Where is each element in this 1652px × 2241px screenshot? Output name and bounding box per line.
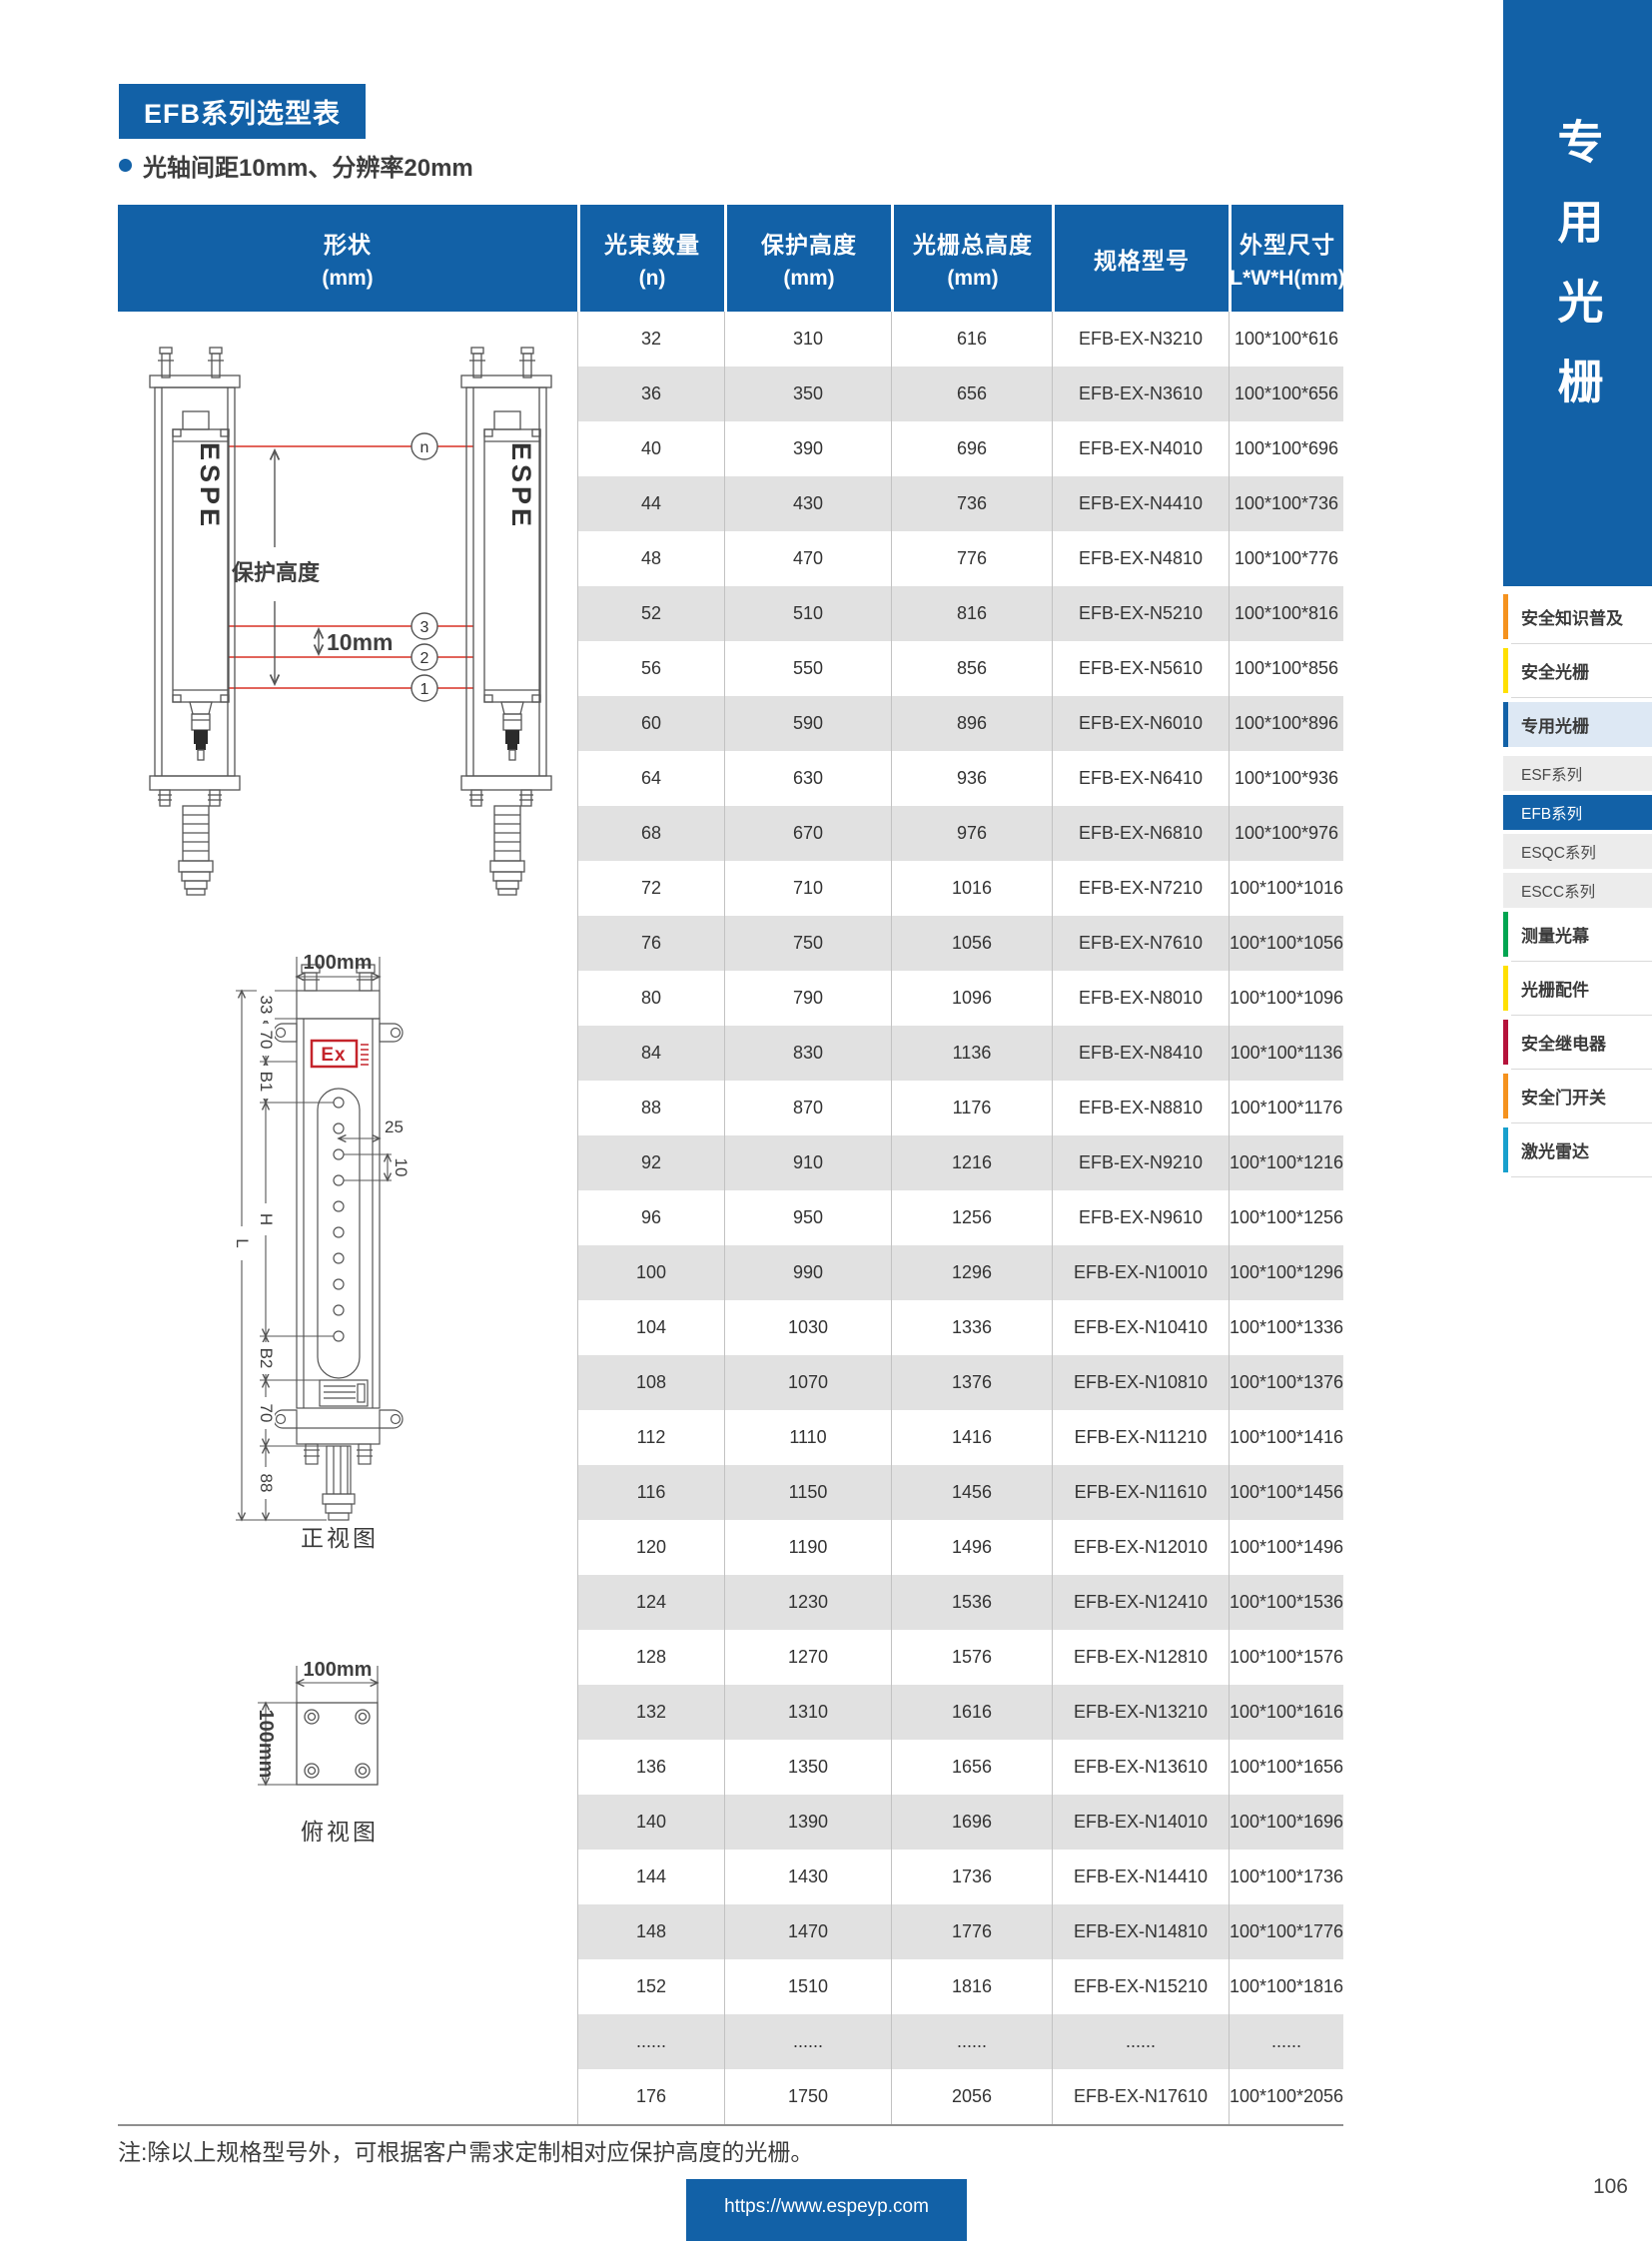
cell-beam-count: 136 [577, 1740, 724, 1795]
cell-model: EFB-EX-N3610 [1052, 367, 1229, 421]
cell-dimensions: 100*100*1696 [1229, 1795, 1343, 1850]
sidebar-item[interactable]: EFB系列 [1503, 795, 1652, 830]
table-row: 76 750 1056 EFB-EX-N7610 100*100*1056 [577, 916, 1343, 971]
cell-protect-height: 1750 [724, 2069, 891, 2124]
beam-label: 1 [420, 681, 429, 698]
sidebar-item-label: 安全光栅 [1521, 658, 1589, 683]
cell-protect-height: 1230 [724, 1575, 891, 1630]
cell-protect-height: 1030 [724, 1300, 891, 1355]
brand-text: ESPE [506, 442, 536, 530]
cell-protect-height: 950 [724, 1190, 891, 1245]
ex-marking: Ex [312, 1041, 369, 1067]
cell-dimensions: 100*100*696 [1229, 421, 1343, 476]
header-label: 规格型号 [1094, 242, 1190, 276]
cell-protect-height: 1270 [724, 1630, 891, 1685]
cell-beam-count: 40 [577, 421, 724, 476]
cell-protect-height: 750 [724, 916, 891, 971]
header-beam-count: 光束数量 (n) [577, 205, 724, 312]
cell-beam-count: 80 [577, 971, 724, 1026]
table-row: 108 1070 1376 EFB-EX-N10810 100*100*1376 [577, 1355, 1343, 1410]
cell-model: EFB-EX-N12810 [1052, 1630, 1229, 1685]
table-row: 72 710 1016 EFB-EX-N7210 100*100*1016 [577, 861, 1343, 916]
cell-model: EFB-EX-N14810 [1052, 1904, 1229, 1959]
sidebar-item-label: ESCC系列 [1521, 880, 1595, 902]
cell-total-height: 1136 [891, 1026, 1052, 1081]
spec-bullet-label: 光轴间距10mm、分辨率20mm [143, 148, 473, 183]
cell-total-height: 1416 [891, 1410, 1052, 1465]
cell-dimensions: 100*100*736 [1229, 476, 1343, 531]
sidebar-item[interactable]: 测量光幕 [1503, 912, 1652, 957]
sidebar-item-label: EFB系列 [1521, 802, 1582, 824]
svg-text:B1: B1 [257, 1072, 276, 1093]
table-row: 120 1190 1496 EFB-EX-N12010 100*100*1496 [577, 1520, 1343, 1575]
header-unit: (mm) [322, 267, 373, 291]
cell-total-height: 1616 [891, 1685, 1052, 1740]
cell-total-height: 1376 [891, 1355, 1052, 1410]
table-row: 144 1430 1736 EFB-EX-N14410 100*100*1736 [577, 1850, 1343, 1904]
table-row: 80 790 1096 EFB-EX-N8010 100*100*1096 [577, 971, 1343, 1026]
cell-protect-height: 1350 [724, 1740, 891, 1795]
svg-text:H: H [257, 1213, 276, 1225]
svg-text:L: L [233, 1238, 252, 1247]
protection-height-label: 保护高度 [231, 560, 321, 585]
cell-beam-count: 116 [577, 1465, 724, 1520]
cell-beam-count: 100 [577, 1245, 724, 1300]
cell-dimensions: 100*100*856 [1229, 641, 1343, 696]
header-unit: (mm) [947, 267, 998, 291]
cell-protect-height: 1310 [724, 1685, 891, 1740]
cell-dimensions: 100*100*1656 [1229, 1740, 1343, 1795]
cell-total-height: 1816 [891, 1959, 1052, 2014]
table-row: 92 910 1216 EFB-EX-N9210 100*100*1216 [577, 1135, 1343, 1190]
table-header: 形状 (mm) 光束数量 (n) 保护高度 (mm) 光栅总高度 (mm) 规格… [118, 205, 1343, 312]
cell-model: EFB-EX-N12410 [1052, 1575, 1229, 1630]
cell-model: EFB-EX-N4010 [1052, 421, 1229, 476]
cell-dimensions: 100*100*1776 [1229, 1904, 1343, 1959]
header-label: 形状 [324, 226, 372, 260]
cell-total-height: 1696 [891, 1795, 1052, 1850]
accent-bar [1503, 1074, 1508, 1119]
table-row: 176 1750 2056 EFB-EX-N17610 100*100*2056 [577, 2069, 1343, 2124]
header-label: 外型尺寸 [1239, 226, 1335, 260]
cell-dimensions: 100*100*1256 [1229, 1190, 1343, 1245]
cell-model: EFB-EX-N6410 [1052, 751, 1229, 806]
cell-dimensions: 100*100*1376 [1229, 1355, 1343, 1410]
cell-total-height: 1176 [891, 1081, 1052, 1135]
cell-beam-count: 76 [577, 916, 724, 971]
cell-model: EFB-EX-N7610 [1052, 916, 1229, 971]
dim-25-label: 25 [385, 1118, 404, 1136]
cell-beam-count: 92 [577, 1135, 724, 1190]
cell-beam-count: 56 [577, 641, 724, 696]
table-row: 124 1230 1536 EFB-EX-N12410 100*100*1536 [577, 1575, 1343, 1630]
sidebar-vertical-title: 专用光栅 [1545, 118, 1611, 437]
cell-model: EFB-EX-N14010 [1052, 1795, 1229, 1850]
cell-dimensions: 100*100*1016 [1229, 861, 1343, 916]
cell-dimensions: 100*100*976 [1229, 806, 1343, 861]
cell-total-height: 696 [891, 421, 1052, 476]
cell-protect-height: 350 [724, 367, 891, 421]
tower-receiver: ESPE [461, 348, 551, 895]
cell-dimensions: 100*100*1216 [1229, 1135, 1343, 1190]
cell-model: EFB-EX-N6810 [1052, 806, 1229, 861]
sidebar-item[interactable]: 专用光栅 [1503, 702, 1652, 747]
sidebar-item[interactable]: 激光雷达 [1503, 1127, 1652, 1172]
accent-bar [1503, 594, 1508, 639]
table-row: 40 390 696 EFB-EX-N4010 100*100*696 [577, 421, 1343, 476]
cell-total-height: 1096 [891, 971, 1052, 1026]
light-curtain-pair-diagram: ESPE [138, 340, 557, 939]
cell-total-height: ...... [891, 2014, 1052, 2069]
cell-total-height: 816 [891, 586, 1052, 641]
cell-beam-count: 104 [577, 1300, 724, 1355]
top-view-width-label: 100mm [304, 1659, 373, 1681]
table-row: ...... ...... ...... ...... ...... [577, 2014, 1343, 2069]
cell-protect-height: 390 [724, 421, 891, 476]
cell-total-height: 1496 [891, 1520, 1052, 1575]
sidebar-item-label: 测量光幕 [1521, 922, 1589, 947]
cell-beam-count: 120 [577, 1520, 724, 1575]
cell-protect-height: 990 [724, 1245, 891, 1300]
table-row: 88 870 1176 EFB-EX-N8810 100*100*1176 [577, 1081, 1343, 1135]
cell-dimensions: 100*100*1736 [1229, 1850, 1343, 1904]
dim-chains [236, 991, 334, 1520]
cell-protect-height: 550 [724, 641, 891, 696]
cell-dimensions: 100*100*1536 [1229, 1575, 1343, 1630]
table-row: 52 510 816 EFB-EX-N5210 100*100*816 [577, 586, 1343, 641]
sidebar-item[interactable]: ESQC系列 [1503, 834, 1652, 869]
sidebar-item-label: 安全门开关 [1521, 1084, 1606, 1109]
cell-model: EFB-EX-N5610 [1052, 641, 1229, 696]
sidebar-category-banner: 专用光栅 [1503, 0, 1652, 586]
cell-beam-count: 112 [577, 1410, 724, 1465]
cell-beam-count: 108 [577, 1355, 724, 1410]
cell-total-height: 776 [891, 531, 1052, 586]
cell-beam-count: 72 [577, 861, 724, 916]
sidebar-menu: 安全知识普及安全光栅专用光栅ESF系列EFB系列ESQC系列ESCC系列测量光幕… [1503, 594, 1652, 1181]
table-row: 116 1150 1456 EFB-EX-N11610 100*100*1456 [577, 1465, 1343, 1520]
cell-beam-count: 176 [577, 2069, 724, 2124]
table-row: 56 550 856 EFB-EX-N5610 100*100*856 [577, 641, 1343, 696]
cell-beam-count: 32 [577, 312, 724, 367]
svg-text:B2: B2 [257, 1348, 276, 1369]
sidebar-item-label: 安全继电器 [1521, 1030, 1606, 1055]
cell-total-height: 736 [891, 476, 1052, 531]
accent-bar [1503, 702, 1508, 747]
cell-beam-count: 48 [577, 531, 724, 586]
footer-url-box: https://www.espeyp.com [686, 2179, 967, 2241]
cell-protect-height: 1390 [724, 1795, 891, 1850]
cell-beam-count: 36 [577, 367, 724, 421]
cell-total-height: 1736 [891, 1850, 1052, 1904]
sidebar-item[interactable]: 光栅配件 [1503, 966, 1652, 1011]
cell-model: EFB-EX-N14410 [1052, 1850, 1229, 1904]
header-unit: (mm) [783, 267, 834, 291]
cell-dimensions: 100*100*776 [1229, 531, 1343, 586]
cell-model: EFB-EX-N13210 [1052, 1685, 1229, 1740]
cell-model: EFB-EX-N4810 [1052, 531, 1229, 586]
top-view-height-label: 100mm [255, 1710, 277, 1779]
cell-total-height: 2056 [891, 2069, 1052, 2124]
cell-total-height: 1016 [891, 861, 1052, 916]
cell-total-height: 976 [891, 806, 1052, 861]
header-unit: (n) [639, 267, 666, 291]
cell-beam-count: 88 [577, 1081, 724, 1135]
table-row: 140 1390 1696 EFB-EX-N14010 100*100*1696 [577, 1795, 1343, 1850]
cell-total-height: 656 [891, 367, 1052, 421]
cell-total-height: 1216 [891, 1135, 1052, 1190]
table-row: 96 950 1256 EFB-EX-N9610 100*100*1256 [577, 1190, 1343, 1245]
sidebar-item-label: 专用光栅 [1521, 712, 1589, 737]
header-dimensions: 外型尺寸 L*W*H(mm) [1229, 205, 1343, 312]
cell-model: EFB-EX-N10810 [1052, 1355, 1229, 1410]
svg-text:33: 33 [257, 996, 276, 1015]
svg-text:70: 70 [257, 1404, 276, 1423]
cell-protect-height: 710 [724, 861, 891, 916]
header-unit: L*W*H(mm) [1230, 267, 1345, 291]
cell-total-height: 1296 [891, 1245, 1052, 1300]
cell-dimensions: 100*100*1056 [1229, 916, 1343, 971]
sidebar-item[interactable]: ESCC系列 [1503, 873, 1652, 908]
cell-dimensions: 100*100*1456 [1229, 1465, 1343, 1520]
beam-label: n [420, 439, 429, 456]
cell-protect-height: ...... [724, 2014, 891, 2069]
table-row: 32 310 616 EFB-EX-N3210 100*100*616 [577, 312, 1343, 367]
header-label: 光栅总高度 [913, 226, 1033, 260]
selection-table: 形状 (mm) 光束数量 (n) 保护高度 (mm) 光栅总高度 (mm) 规格… [118, 205, 1343, 2126]
accent-bar [1503, 966, 1508, 1011]
page-title: EFB系列选型表 [119, 84, 366, 139]
cell-dimensions: 100*100*1136 [1229, 1026, 1343, 1081]
cell-model: EFB-EX-N17610 [1052, 2069, 1229, 2124]
cell-dimensions: 100*100*1296 [1229, 1245, 1343, 1300]
cell-model: EFB-EX-N8410 [1052, 1026, 1229, 1081]
sidebar-item-label: ESF系列 [1521, 763, 1582, 785]
cell-protect-height: 1070 [724, 1355, 891, 1410]
svg-text:70: 70 [257, 1031, 276, 1050]
cell-protect-height: 310 [724, 312, 891, 367]
cell-total-height: 1656 [891, 1740, 1052, 1795]
table-row: 60 590 896 EFB-EX-N6010 100*100*896 [577, 696, 1343, 751]
cell-dimensions: 100*100*1576 [1229, 1630, 1343, 1685]
cell-dimensions: 100*100*1336 [1229, 1300, 1343, 1355]
cell-total-height: 1256 [891, 1190, 1052, 1245]
cell-beam-count: 148 [577, 1904, 724, 1959]
table-row: 128 1270 1576 EFB-EX-N12810 100*100*1576 [577, 1630, 1343, 1685]
accent-bar [1503, 1127, 1508, 1172]
cell-protect-height: 590 [724, 696, 891, 751]
table-row: 44 430 736 EFB-EX-N4410 100*100*736 [577, 476, 1343, 531]
cell-model: EFB-EX-N5210 [1052, 586, 1229, 641]
sidebar-item-label: 光栅配件 [1521, 976, 1589, 1001]
cell-beam-count: 144 [577, 1850, 724, 1904]
cell-dimensions: 100*100*1816 [1229, 1959, 1343, 2014]
cell-protect-height: 1510 [724, 1959, 891, 2014]
cell-dimensions: 100*100*936 [1229, 751, 1343, 806]
cell-dimensions: 100*100*1416 [1229, 1410, 1343, 1465]
table-rows: 32 310 616 EFB-EX-N3210 100*100*616 36 3… [577, 312, 1343, 2124]
front-width-label: 100mm [304, 952, 373, 974]
tower-transmitter: ESPE [150, 348, 240, 895]
cell-beam-count: 44 [577, 476, 724, 531]
table-row: 84 830 1136 EFB-EX-N8410 100*100*1136 [577, 1026, 1343, 1081]
cell-protect-height: 470 [724, 531, 891, 586]
cell-model: EFB-EX-N11210 [1052, 1410, 1229, 1465]
cell-model: EFB-EX-N15210 [1052, 1959, 1229, 2014]
front-view-diagram: Ex 100mm [230, 949, 410, 1568]
cell-model: EFB-EX-N11610 [1052, 1465, 1229, 1520]
bullet-dot-icon [119, 159, 132, 172]
sidebar-item[interactable]: 安全知识普及 [1503, 594, 1652, 639]
cell-model: EFB-EX-N9610 [1052, 1190, 1229, 1245]
table-row: 36 350 656 EFB-EX-N3610 100*100*656 [577, 367, 1343, 421]
cell-model: EFB-EX-N8010 [1052, 971, 1229, 1026]
cell-total-height: 856 [891, 641, 1052, 696]
sidebar-item-label: 激光雷达 [1521, 1137, 1589, 1162]
cell-total-height: 936 [891, 751, 1052, 806]
beam-label: 2 [420, 650, 429, 667]
spec-bullet: 光轴间距10mm、分辨率20mm [119, 150, 473, 180]
cell-model: EFB-EX-N10410 [1052, 1300, 1229, 1355]
ex-label: Ex [321, 1045, 346, 1066]
cell-protect-height: 1110 [724, 1410, 891, 1465]
cell-beam-count: 132 [577, 1685, 724, 1740]
cell-protect-height: 430 [724, 476, 891, 531]
cell-total-height: 1456 [891, 1465, 1052, 1520]
cell-beam-count: 84 [577, 1026, 724, 1081]
sidebar-item[interactable]: ESF系列 [1503, 756, 1652, 791]
cell-dimensions: 100*100*896 [1229, 696, 1343, 751]
cell-beam-count: 152 [577, 1959, 724, 2014]
cell-protect-height: 830 [724, 1026, 891, 1081]
cell-dimensions: 100*100*616 [1229, 312, 1343, 367]
header-shape: 形状 (mm) [118, 205, 577, 312]
cell-dimensions: 100*100*1496 [1229, 1520, 1343, 1575]
cell-beam-count: 128 [577, 1630, 724, 1685]
cell-dimensions: 100*100*2056 [1229, 2069, 1343, 2124]
cell-model: EFB-EX-N6010 [1052, 696, 1229, 751]
table-row: 68 670 976 EFB-EX-N6810 100*100*976 [577, 806, 1343, 861]
cell-model: EFB-EX-N9210 [1052, 1135, 1229, 1190]
header-label: 保护高度 [761, 226, 857, 260]
cell-model: EFB-EX-N12010 [1052, 1520, 1229, 1575]
table-row: 100 990 1296 EFB-EX-N10010 100*100*1296 [577, 1245, 1343, 1300]
cell-model: ...... [1052, 2014, 1229, 2069]
cell-model: EFB-EX-N10010 [1052, 1245, 1229, 1300]
cell-total-height: 1576 [891, 1630, 1052, 1685]
header-label: 光束数量 [604, 226, 700, 260]
header-total-height: 光栅总高度 (mm) [891, 205, 1052, 312]
page-title-label: EFB系列选型表 [144, 92, 341, 131]
beam-number-bubbles: n 3 2 1 [412, 433, 437, 701]
beam-label: 3 [420, 619, 429, 636]
cell-protect-height: 790 [724, 971, 891, 1026]
cell-protect-height: 670 [724, 806, 891, 861]
custom-order-note: 注:除以上规格型号外，可根据客户需求定制相对应保护高度的光栅。 [118, 2133, 813, 2167]
table-row: 48 470 776 EFB-EX-N4810 100*100*776 [577, 531, 1343, 586]
table-row: 152 1510 1816 EFB-EX-N15210 100*100*1816 [577, 1959, 1343, 2014]
cell-total-height: 1336 [891, 1300, 1052, 1355]
cell-dimensions: 100*100*816 [1229, 586, 1343, 641]
sidebar-item[interactable]: 安全继电器 [1503, 1020, 1652, 1065]
sidebar-item[interactable]: 安全门开关 [1503, 1074, 1652, 1119]
cell-protect-height: 1430 [724, 1850, 891, 1904]
cell-model: EFB-EX-N8810 [1052, 1081, 1229, 1135]
cell-beam-count: 140 [577, 1795, 724, 1850]
accent-bar [1503, 912, 1508, 957]
table-row: 132 1310 1616 EFB-EX-N13210 100*100*1616 [577, 1685, 1343, 1740]
cell-model: EFB-EX-N13610 [1052, 1740, 1229, 1795]
sidebar-item-label: 安全知识普及 [1521, 604, 1623, 629]
table-row: 104 1030 1336 EFB-EX-N10410 100*100*1336 [577, 1300, 1343, 1355]
cell-model: EFB-EX-N3210 [1052, 312, 1229, 367]
cell-beam-count: 124 [577, 1575, 724, 1630]
beam-pitch-label: 10mm [327, 629, 393, 655]
header-model: 规格型号 [1052, 205, 1229, 312]
cell-protect-height: 1150 [724, 1465, 891, 1520]
cell-dimensions: ...... [1229, 2014, 1343, 2069]
cell-beam-count: 64 [577, 751, 724, 806]
cell-protect-height: 910 [724, 1135, 891, 1190]
cell-protect-height: 510 [724, 586, 891, 641]
table-row: 64 630 936 EFB-EX-N6410 100*100*936 [577, 751, 1343, 806]
cell-total-height: 616 [891, 312, 1052, 367]
cell-total-height: 1536 [891, 1575, 1052, 1630]
cell-beam-count: ...... [577, 2014, 724, 2069]
cell-model: EFB-EX-N7210 [1052, 861, 1229, 916]
table-row: 136 1350 1656 EFB-EX-N13610 100*100*1656 [577, 1740, 1343, 1795]
cell-dimensions: 100*100*1176 [1229, 1081, 1343, 1135]
brand-text: ESPE [195, 442, 225, 530]
cell-beam-count: 60 [577, 696, 724, 751]
cell-total-height: 1056 [891, 916, 1052, 971]
cell-protect-height: 630 [724, 751, 891, 806]
cell-dimensions: 100*100*1616 [1229, 1685, 1343, 1740]
cell-dimensions: 100*100*1096 [1229, 971, 1343, 1026]
accent-bar [1503, 1020, 1508, 1065]
cell-beam-count: 68 [577, 806, 724, 861]
accent-bar [1503, 648, 1508, 693]
footer-url[interactable]: https://www.espeyp.com [724, 2196, 929, 2241]
svg-text:88: 88 [257, 1474, 276, 1493]
cell-protect-height: 1470 [724, 1904, 891, 1959]
table-row: 112 1110 1416 EFB-EX-N11210 100*100*1416 [577, 1410, 1343, 1465]
cell-beam-count: 52 [577, 586, 724, 641]
front-view-caption: 正视图 [301, 1525, 379, 1551]
table-row: 148 1470 1776 EFB-EX-N14810 100*100*1776 [577, 1904, 1343, 1959]
shape-diagram-cell: ESPE [118, 312, 577, 2124]
top-view-caption: 俯视图 [301, 1819, 379, 1845]
catalog-page: { "page": { "title": "EFB系列选型表", "subtit… [0, 0, 1652, 2241]
cell-total-height: 1776 [891, 1904, 1052, 1959]
cell-beam-count: 96 [577, 1190, 724, 1245]
cell-model: EFB-EX-N4410 [1052, 476, 1229, 531]
dim-10-label: 10 [392, 1158, 410, 1177]
cell-protect-height: 1190 [724, 1520, 891, 1575]
cell-dimensions: 100*100*656 [1229, 367, 1343, 421]
page-number: 106 [1548, 2175, 1628, 2199]
cell-total-height: 896 [891, 696, 1052, 751]
header-protect-height: 保护高度 (mm) [724, 205, 891, 312]
sidebar-item-label: ESQC系列 [1521, 841, 1596, 863]
cell-protect-height: 870 [724, 1081, 891, 1135]
sidebar-item[interactable]: 安全光栅 [1503, 648, 1652, 693]
dim-right [339, 1138, 392, 1180]
top-view-diagram: 100mm 100mm 俯视图 [230, 1628, 410, 1858]
